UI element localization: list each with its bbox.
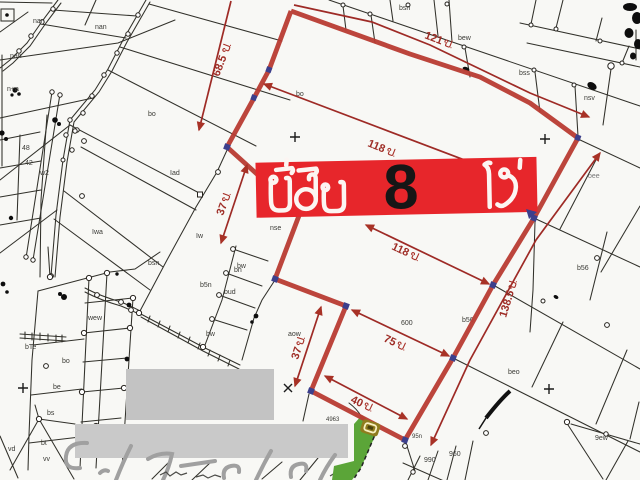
svg-text:w2: w2 bbox=[39, 170, 49, 177]
svg-text:vv: vv bbox=[43, 456, 51, 463]
svg-text:990: 990 bbox=[424, 457, 436, 464]
svg-text:nan: nan bbox=[10, 53, 22, 60]
svg-text:8: 8 bbox=[383, 152, 420, 223]
svg-text:42: 42 bbox=[25, 160, 33, 167]
svg-text:bw: bw bbox=[206, 331, 216, 338]
svg-text:bs: bs bbox=[47, 410, 55, 417]
svg-text:nan: nan bbox=[33, 18, 45, 25]
svg-text:bn: bn bbox=[234, 267, 242, 274]
svg-text:b5n: b5n bbox=[200, 282, 212, 289]
svg-text:48: 48 bbox=[22, 145, 30, 152]
svg-text:wew: wew bbox=[87, 315, 103, 322]
svg-text:9ew: 9ew bbox=[595, 435, 609, 442]
svg-text:n+a: n+a bbox=[7, 86, 19, 93]
svg-text:bt: bt bbox=[41, 440, 47, 447]
svg-text:960: 960 bbox=[449, 451, 461, 458]
svg-text:bTe: bTe bbox=[25, 344, 36, 351]
svg-text:Iw: Iw bbox=[196, 233, 204, 240]
svg-text:bsn: bsn bbox=[399, 5, 410, 12]
svg-text:oee: oee bbox=[588, 173, 600, 180]
svg-text:nan: nan bbox=[95, 24, 107, 31]
svg-text:beo: beo bbox=[508, 369, 520, 376]
svg-text:aow: aow bbox=[288, 331, 302, 338]
svg-text:bud: bud bbox=[224, 289, 236, 296]
svg-text:nsv: nsv bbox=[584, 95, 595, 102]
svg-text:95n: 95n bbox=[412, 434, 422, 440]
svg-text:Iwa: Iwa bbox=[92, 229, 103, 236]
svg-text:bo: bo bbox=[62, 358, 70, 365]
svg-text:bew: bew bbox=[458, 35, 472, 42]
svg-text:bsn: bsn bbox=[148, 260, 159, 267]
svg-text:bss: bss bbox=[519, 70, 530, 77]
svg-text:Iad: Iad bbox=[170, 170, 180, 177]
svg-text:b56: b56 bbox=[577, 265, 589, 272]
svg-text:4963: 4963 bbox=[326, 417, 340, 423]
svg-text:nse: nse bbox=[270, 225, 281, 232]
svg-text:vd: vd bbox=[8, 446, 16, 453]
svg-text:bo: bo bbox=[148, 111, 156, 118]
svg-text:600: 600 bbox=[401, 320, 413, 327]
svg-text:be: be bbox=[53, 384, 61, 391]
